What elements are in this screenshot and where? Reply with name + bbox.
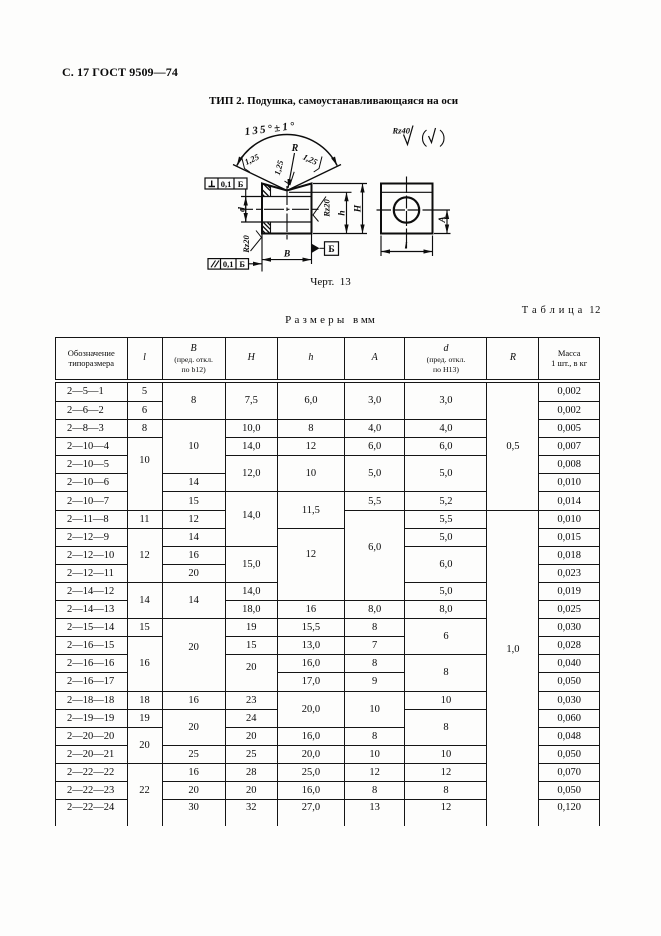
svg-text:B: B: [283, 250, 290, 260]
svg-text:135°±1°: 135°±1°: [244, 120, 297, 138]
svg-text:Б: Б: [238, 179, 244, 189]
svg-text:Б: Б: [239, 259, 245, 269]
svg-text:l: l: [405, 242, 408, 252]
svg-text:1,25: 1,25: [272, 159, 286, 177]
svg-text:0,1: 0,1: [221, 179, 232, 189]
svg-text:Rz20: Rz20: [321, 199, 331, 218]
svg-text:R: R: [291, 143, 299, 154]
svg-text:Б: Б: [328, 245, 334, 255]
svg-text:Rz20: Rz20: [241, 235, 251, 254]
svg-text:1,25: 1,25: [301, 152, 319, 168]
svg-text:A: A: [438, 216, 448, 223]
svg-text:Rz40: Rz40: [392, 126, 411, 136]
svg-text:0,1: 0,1: [223, 259, 234, 269]
svg-text:h: h: [338, 210, 348, 215]
svg-text:d: d: [238, 207, 248, 212]
svg-text:H: H: [354, 204, 364, 213]
